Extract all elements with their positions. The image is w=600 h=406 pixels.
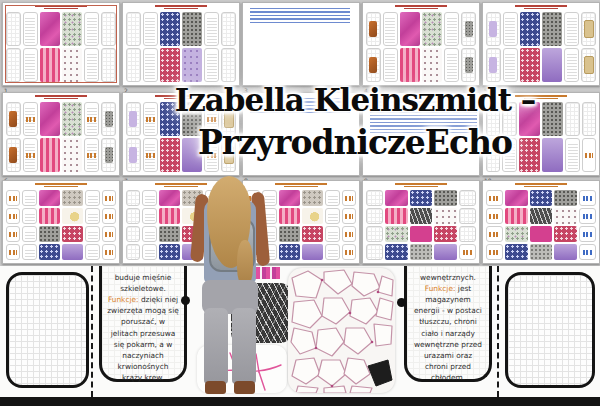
note-text: dzięki niej zwierzęta mogą się poruszać,… <box>107 295 179 382</box>
micrograph-tile <box>505 244 528 260</box>
mini-card <box>126 48 141 82</box>
micrograph-tile <box>434 226 457 242</box>
person-photo <box>191 176 269 398</box>
micrograph-tile <box>434 208 457 224</box>
mini-card <box>582 102 596 136</box>
mini-card <box>486 208 503 224</box>
micrograph-tile <box>410 244 433 260</box>
title-bar <box>515 183 566 185</box>
mini-card <box>6 138 21 172</box>
worksheet-body <box>126 12 236 82</box>
micrograph-tile <box>302 226 323 242</box>
card-column <box>444 12 459 82</box>
mini-card <box>461 12 476 46</box>
mini-card <box>325 208 340 224</box>
micrograph-tile <box>159 208 180 224</box>
micrograph-tile <box>520 12 540 46</box>
decor <box>371 341 374 344</box>
mini-card <box>459 190 476 206</box>
micrograph-tile <box>62 102 82 136</box>
mini-card <box>325 226 340 242</box>
worksheet-title-bars <box>35 5 86 9</box>
worksheet-title-bars <box>395 5 446 9</box>
decor <box>292 271 322 298</box>
mini-card <box>6 12 21 46</box>
mini-card <box>459 226 476 242</box>
product-title: Izabella Kleinszmidt – PrzyrodniczeEcho <box>135 80 575 165</box>
bottom-black-strip <box>0 397 600 406</box>
card-column <box>503 12 518 82</box>
decor <box>292 300 322 328</box>
micrograph-column <box>40 12 60 82</box>
mini-card <box>325 244 340 260</box>
mini-card <box>459 244 476 260</box>
mini-card <box>486 244 503 260</box>
card-column <box>101 12 116 82</box>
mini-card <box>486 190 503 206</box>
mini-card <box>579 226 596 242</box>
card-column <box>221 12 236 82</box>
micrograph-column <box>520 12 540 82</box>
worksheet-title-bars <box>395 183 446 187</box>
decor <box>344 328 372 354</box>
mini-card <box>581 12 596 46</box>
micrograph-tile <box>40 12 60 46</box>
micrograph-tile <box>400 48 420 82</box>
zoomed-worksheet-strip: buduje mięśnie szkieletowe. Funkcje: dzi… <box>0 266 600 397</box>
card-column <box>6 12 21 82</box>
note-text: wewnętrznych. <box>420 273 476 282</box>
micrograph-tile <box>40 48 60 82</box>
worksheet-body <box>486 12 596 82</box>
mini-card <box>486 226 503 242</box>
decor <box>377 291 380 294</box>
mini-card <box>6 190 20 206</box>
card-column <box>84 102 99 172</box>
micrograph-tile <box>542 48 562 82</box>
micrograph-tile <box>279 190 300 206</box>
micrograph-column <box>182 12 202 82</box>
micrograph-tile <box>159 190 180 206</box>
micrograph-tile <box>422 48 442 82</box>
mini-card <box>6 226 20 242</box>
micrograph-tile <box>542 12 562 46</box>
mini-card <box>221 48 236 82</box>
page-thumbnail-5: 5 <box>482 2 600 86</box>
micrograph-tile <box>385 208 408 224</box>
mini-card <box>564 12 579 46</box>
decor <box>350 386 372 393</box>
micrograph-tile <box>520 48 540 82</box>
cut-line-right <box>497 266 499 397</box>
mini-card <box>204 48 219 82</box>
card-column <box>143 12 158 82</box>
micrograph-tile <box>279 244 300 260</box>
funkcje-label: Funkcje: <box>425 284 456 293</box>
card-column <box>564 12 579 82</box>
mini-card <box>503 48 518 82</box>
page-thumbnail-4: 4 <box>362 2 480 86</box>
mini-card <box>383 48 398 82</box>
micrograph-tile <box>434 244 457 260</box>
mini-card <box>101 48 116 82</box>
page-thumbnail-6: 6 <box>2 92 120 176</box>
mini-card <box>85 226 100 242</box>
decor <box>324 386 346 393</box>
micrograph-tile <box>160 48 180 82</box>
mini-card <box>342 208 356 224</box>
title-bar <box>155 5 206 7</box>
page-thumbnail-14: 14 <box>362 180 480 264</box>
page-thumbnail-15: 15 <box>482 180 600 264</box>
micrograph-tile <box>39 244 60 260</box>
micrograph-tile <box>410 208 433 224</box>
decor <box>315 347 318 350</box>
mini-card <box>85 244 100 260</box>
decor <box>318 360 346 386</box>
title-bar <box>395 183 446 185</box>
micrograph-tile <box>385 226 408 242</box>
micrograph-tile <box>62 138 82 172</box>
page-thumbnail-1: 1 <box>2 2 120 86</box>
mini-card <box>84 138 99 172</box>
mini-card <box>579 190 596 206</box>
mini-card <box>142 208 157 224</box>
mini-card <box>486 48 501 82</box>
mini-card <box>22 244 37 260</box>
title-bar <box>284 186 317 187</box>
worksheet-title-bars <box>155 5 206 9</box>
mini-card <box>366 12 381 46</box>
mini-card <box>459 208 476 224</box>
decor <box>378 276 393 296</box>
micrograph-tile <box>530 244 553 260</box>
card-column <box>383 12 398 82</box>
title-bar <box>404 8 437 9</box>
decor <box>324 270 352 294</box>
mini-card <box>101 102 116 136</box>
funkcje-label: Funkcje: <box>108 295 139 304</box>
micrograph-tile <box>554 226 577 242</box>
person-left-leg <box>204 308 228 384</box>
micrograph-tile <box>410 226 433 242</box>
blank-grid-card-right <box>505 272 595 388</box>
mini-card <box>564 48 579 82</box>
promo-collage: 1 2 3 4 5 6 7 8 9 10 11 12 13 14 15 budu… <box>0 0 600 406</box>
micrograph-column <box>62 102 82 172</box>
micrograph-tile <box>410 190 433 206</box>
handle-dot <box>397 298 406 307</box>
person-right-leg <box>232 308 256 384</box>
worksheet-title-bars <box>515 5 566 9</box>
decor <box>321 279 324 282</box>
title-line-1: Izabella Kleinszmidt – <box>135 80 575 122</box>
title-bar <box>524 186 557 187</box>
title-bar <box>44 98 77 99</box>
micrograph-column <box>400 12 420 82</box>
decor <box>292 358 320 384</box>
mini-card <box>383 12 398 46</box>
micrograph-column <box>62 12 82 82</box>
mini-card <box>6 244 20 260</box>
decor <box>350 298 378 324</box>
micrograph-tile <box>40 102 60 136</box>
micrograph-tile <box>62 208 83 224</box>
micrograph-tile <box>62 190 83 206</box>
blank-grid-card-left <box>6 272 89 388</box>
worksheet-body <box>6 190 116 260</box>
card-column <box>101 102 116 172</box>
worksheet-body <box>366 12 476 82</box>
mini-card <box>142 190 157 206</box>
micrograph-tile <box>62 12 82 46</box>
decor <box>291 328 316 354</box>
worksheet-body <box>486 190 596 260</box>
micrograph-column <box>422 12 442 82</box>
note-text: jest magazynem energii - w postaci tłusz… <box>414 284 482 382</box>
micrograph-tile <box>279 208 300 224</box>
decor <box>296 386 318 393</box>
title-bar <box>404 186 437 187</box>
worksheet-title-bars <box>515 183 566 187</box>
micrograph-tile <box>182 48 202 82</box>
micrograph-tile <box>554 208 577 224</box>
note-text: buduje mięśnie szkieletowe. <box>115 273 172 293</box>
mini-card <box>582 138 596 172</box>
adipose-tissue-micrograph <box>288 268 395 393</box>
micrograph-tile <box>39 226 60 242</box>
micrograph-tile <box>422 12 442 46</box>
mini-card <box>366 190 383 206</box>
mini-card <box>503 12 518 46</box>
page-thumbnail-3: 3 <box>242 2 360 86</box>
micrograph-tile <box>182 12 202 46</box>
person-left-shoe <box>205 381 226 394</box>
micrograph-tile <box>434 190 457 206</box>
micrograph-tile <box>159 244 180 260</box>
mini-card <box>126 226 140 242</box>
micrograph-tile <box>400 12 420 46</box>
mini-card <box>579 208 596 224</box>
micrograph-tile <box>159 226 180 242</box>
micrograph-tile <box>385 244 408 260</box>
handle-dot <box>181 296 190 305</box>
title-bar <box>35 183 86 185</box>
mini-card <box>366 244 383 260</box>
micrograph-tile <box>40 138 60 172</box>
worksheet-title-bars <box>275 183 326 187</box>
mini-card <box>142 244 157 260</box>
mini-card <box>126 12 141 46</box>
description-card-fat: wewnętrznych. Funkcje: jest magazynem en… <box>404 266 492 382</box>
title-bar <box>515 5 566 7</box>
mini-card <box>84 102 99 136</box>
mini-card <box>84 12 99 46</box>
mini-card <box>23 12 38 46</box>
decor <box>316 328 344 356</box>
micrograph-tile <box>302 190 323 206</box>
worksheet-body <box>6 12 116 82</box>
card-column <box>23 12 38 82</box>
mini-card <box>22 226 37 242</box>
mini-card <box>6 208 20 224</box>
mini-card <box>101 138 116 172</box>
mini-card <box>366 208 383 224</box>
mini-card <box>366 48 381 82</box>
mini-card <box>102 208 116 224</box>
card-column <box>23 102 38 172</box>
mini-card <box>342 190 356 206</box>
title-bar <box>164 8 197 9</box>
description-card-muscle: buduje mięśnie szkieletowe. Funkcje: dzi… <box>99 266 187 382</box>
mini-card <box>6 48 21 82</box>
worksheet-title-bars <box>35 183 86 187</box>
mini-card <box>126 190 140 206</box>
mini-card <box>581 48 596 82</box>
micrograph-tile <box>279 226 300 242</box>
worksheet-body <box>366 190 476 260</box>
mini-card <box>23 138 38 172</box>
mini-card <box>221 12 236 46</box>
mini-card <box>486 12 501 46</box>
title-bar <box>44 8 77 9</box>
micrograph-tile <box>39 190 60 206</box>
micrograph-tile <box>530 226 553 242</box>
decor <box>344 358 370 384</box>
worksheet-body <box>6 102 116 172</box>
micrograph-tile <box>62 244 83 260</box>
card-column <box>366 12 381 82</box>
decor <box>376 298 393 320</box>
mini-card <box>204 12 219 46</box>
mini-card <box>22 208 37 224</box>
card-column <box>581 12 596 82</box>
mini-card <box>85 208 100 224</box>
mini-card <box>22 190 37 206</box>
mini-card <box>142 226 157 242</box>
mini-card <box>102 244 116 260</box>
mini-card <box>102 226 116 242</box>
hyperlink-lines <box>250 8 350 23</box>
micrograph-column <box>160 12 180 82</box>
mini-card <box>126 208 140 224</box>
title-bar <box>275 183 326 185</box>
micrograph-tile <box>62 48 82 82</box>
micrograph-tile <box>302 244 323 260</box>
page-thumbnail-2: 2 <box>122 2 240 86</box>
decor <box>349 312 352 315</box>
title-bar <box>44 186 77 187</box>
card-column <box>84 12 99 82</box>
micrograph-tile <box>62 226 83 242</box>
mini-card <box>366 226 383 242</box>
decor <box>374 324 392 346</box>
micrograph-tile <box>505 208 528 224</box>
mini-card <box>23 102 38 136</box>
mini-card <box>444 48 459 82</box>
micrograph-tile <box>302 208 323 224</box>
mini-card <box>325 190 340 206</box>
mini-card <box>85 190 100 206</box>
micrograph-tile <box>385 190 408 206</box>
mini-card <box>342 226 356 242</box>
mini-card <box>143 48 158 82</box>
cut-line-left <box>91 266 93 397</box>
person-right-shoe <box>234 381 255 394</box>
micrograph-tile <box>530 208 553 224</box>
micrograph-tile <box>554 190 577 206</box>
mini-card <box>126 244 140 260</box>
title-bar <box>35 5 86 7</box>
micrograph-tile <box>554 244 577 260</box>
decor <box>331 385 334 388</box>
card-column <box>6 102 21 172</box>
micrograph-tile <box>505 226 528 242</box>
worksheet-title-bars <box>35 95 86 99</box>
mini-card <box>579 244 596 260</box>
title-bar <box>35 95 86 97</box>
title-line-2: PrzyrodniczeEcho <box>135 122 575 165</box>
mini-card <box>23 48 38 82</box>
title-bar <box>524 8 557 9</box>
card-column <box>461 12 476 82</box>
page-thumbnail-11: 11 <box>2 180 120 264</box>
decor <box>322 298 350 324</box>
micrograph-tile <box>530 190 553 206</box>
decor <box>352 272 380 296</box>
micrograph-column <box>542 12 562 82</box>
mini-card <box>84 48 99 82</box>
micrograph-tile <box>160 12 180 46</box>
mini-card <box>6 102 21 136</box>
decor <box>368 360 392 386</box>
card-column <box>204 12 219 82</box>
micrograph-column <box>40 102 60 172</box>
micrograph-tile <box>505 190 528 206</box>
mini-card <box>444 12 459 46</box>
mini-card <box>101 12 116 46</box>
adipose-cells-drawing <box>288 268 395 393</box>
mini-card <box>102 190 116 206</box>
title-bar <box>395 5 446 7</box>
card-column <box>486 12 501 82</box>
card-column <box>126 12 141 82</box>
mini-card <box>143 12 158 46</box>
mini-card <box>342 244 356 260</box>
mini-card <box>461 48 476 82</box>
micrograph-tile <box>39 208 60 224</box>
